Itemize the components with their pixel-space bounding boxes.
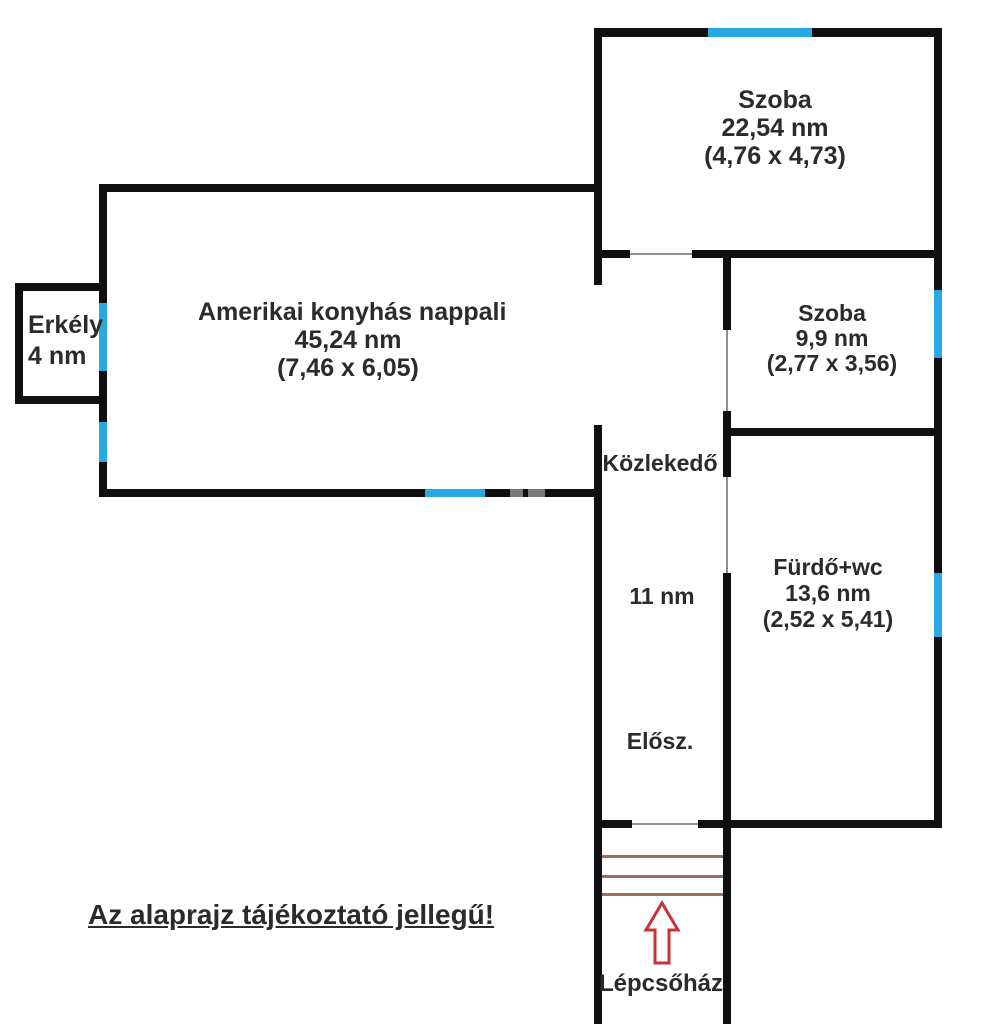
stair-step bbox=[602, 893, 723, 896]
room-area: 4 nm bbox=[28, 341, 108, 372]
room-name: Lépcsőház bbox=[511, 971, 811, 997]
wall-livingroom-bottom bbox=[99, 489, 602, 497]
floor-plan: Szoba 22,54 nm (4,76 x 4,73) Amerikai ko… bbox=[0, 0, 982, 1024]
room-name: Szoba bbox=[625, 86, 925, 114]
wall-livingroom-top bbox=[99, 184, 602, 192]
door-entrance bbox=[632, 823, 698, 825]
room-label-erkely: Erkély 4 nm bbox=[28, 310, 108, 372]
wall-balcony-top bbox=[15, 283, 107, 291]
stair-step bbox=[602, 875, 723, 878]
door-szoba-large bbox=[630, 253, 692, 255]
room-area: 22,54 nm bbox=[625, 114, 925, 142]
room-dims: (2,52 x 5,41) bbox=[678, 606, 978, 632]
room-area: 45,24 nm bbox=[198, 326, 498, 354]
wall-balcony-left bbox=[15, 283, 23, 403]
room-area: 9,9 nm bbox=[682, 326, 982, 351]
room-label-szoba-small: Szoba 9,9 nm (2,77 x 3,56) bbox=[682, 301, 982, 376]
wall-balcony-bottom bbox=[15, 396, 107, 404]
window-livingroom-left bbox=[99, 422, 107, 462]
room-name: Elősz. bbox=[510, 728, 810, 754]
room-label-lepcsohaz: Lépcsőház bbox=[511, 971, 811, 997]
room-label-nappali: Amerikai konyhás nappali 45,24 nm (7,46 … bbox=[198, 298, 498, 382]
up-arrow-icon bbox=[643, 900, 681, 966]
room-label-eloszoba: Elősz. bbox=[510, 728, 810, 754]
room-name: Fürdő+wc bbox=[678, 554, 978, 580]
room-name: Amerikai konyhás nappali bbox=[198, 298, 498, 326]
room-dims: (7,46 x 6,05) bbox=[198, 354, 498, 382]
window-livingroom-bottom bbox=[425, 489, 485, 497]
room-name: Közlekedő bbox=[510, 450, 810, 476]
room-dims: (4,76 x 4,73) bbox=[625, 142, 925, 170]
watermark-mark bbox=[510, 489, 523, 497]
wall-szoba-small-bottom bbox=[723, 428, 942, 436]
room-name: Szoba bbox=[682, 301, 982, 326]
disclaimer-text: Az alaprajz tájékoztató jellegű! bbox=[88, 899, 528, 931]
room-label-furdo: Fürdő+wc 13,6 nm (2,52 x 5,41) bbox=[678, 554, 978, 632]
room-dims: (2,77 x 3,56) bbox=[682, 351, 982, 376]
wall-south-right bbox=[698, 820, 942, 828]
watermark-mark bbox=[528, 489, 545, 497]
room-area: 13,6 nm bbox=[678, 580, 978, 606]
room-name: Erkély bbox=[28, 310, 108, 341]
window-szoba-large bbox=[708, 28, 812, 37]
stair-step bbox=[602, 855, 723, 858]
wall-szoba-large-left bbox=[594, 28, 602, 285]
wall-corridor-left bbox=[594, 425, 602, 827]
wall-szoba-large-bottom-left bbox=[594, 250, 630, 258]
room-label-kozlekedo: Közlekedő bbox=[510, 450, 810, 476]
room-label-szoba-large: Szoba 22,54 nm (4,76 x 4,73) bbox=[625, 86, 925, 170]
